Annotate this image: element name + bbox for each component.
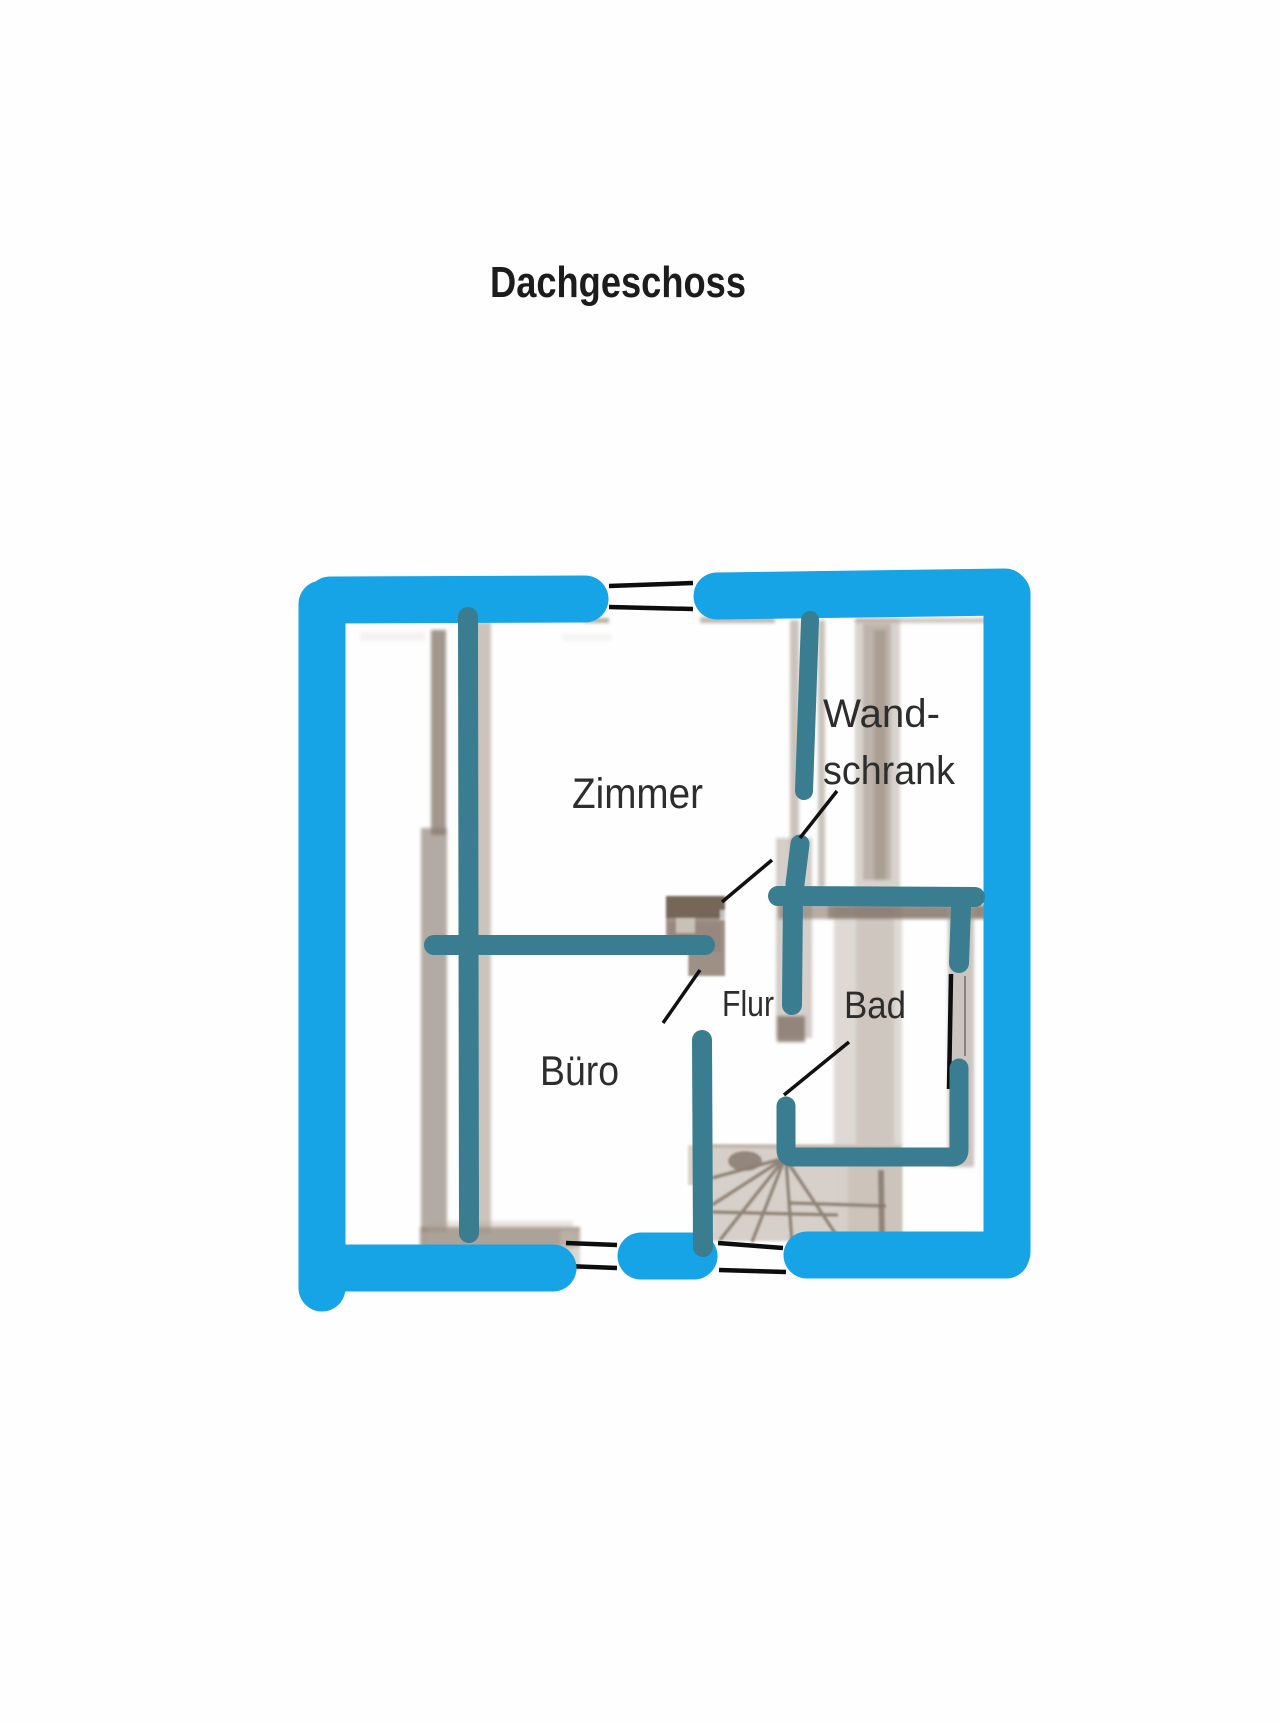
svg-text:schrank: schrank [823, 749, 956, 793]
svg-text:Dachgeschoss: Dachgeschoss [490, 258, 746, 307]
svg-text:Zimmer: Zimmer [572, 770, 703, 818]
svg-text:Flur: Flur [722, 983, 774, 1024]
svg-text:Bad: Bad [844, 985, 906, 1027]
svg-text:Wand-: Wand- [823, 692, 940, 736]
svg-text:Büro: Büro [540, 1047, 619, 1094]
